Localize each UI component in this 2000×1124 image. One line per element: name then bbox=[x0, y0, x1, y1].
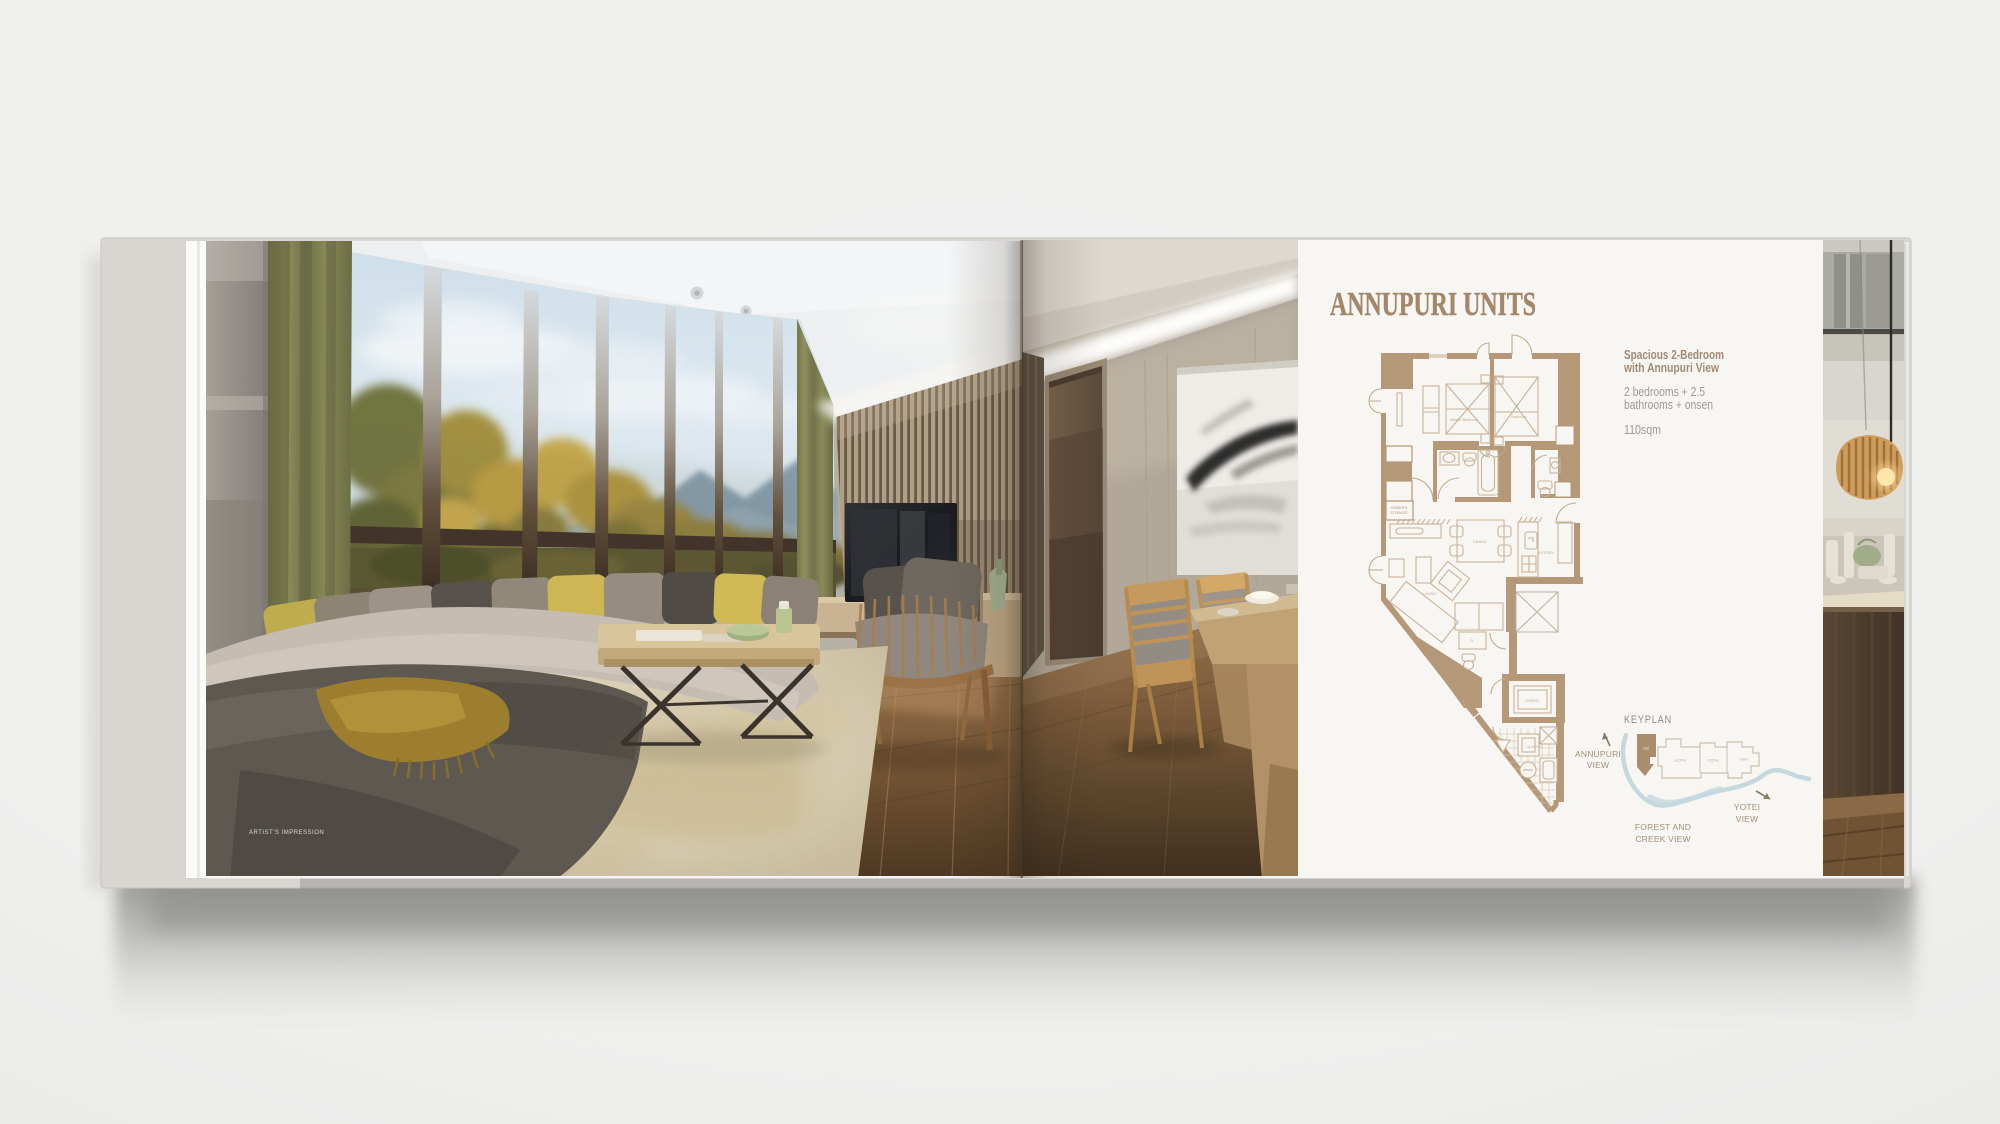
svg-text:YOTEI: YOTEI bbox=[1734, 802, 1761, 812]
svg-text:LIVING: LIVING bbox=[1423, 591, 1436, 596]
svg-text:ONSEN: ONSEN bbox=[1525, 699, 1539, 703]
svg-text:Master Bedroom: Master Bedroom bbox=[1450, 418, 1478, 422]
svg-text:YCPH: YCPH bbox=[1707, 758, 1719, 763]
svg-text:ANNUPURI: ANNUPURI bbox=[1575, 749, 1621, 759]
svg-text:Bedroom: Bedroom bbox=[1511, 415, 1526, 419]
svg-text:LAUNDRY: LAUNDRY bbox=[1526, 745, 1542, 749]
svg-text:KITCHEN: KITCHEN bbox=[1538, 551, 1554, 555]
svg-text:bathrooms + onsen: bathrooms + onsen bbox=[1624, 398, 1713, 412]
svg-text:ANNUPURI UNITS: ANNUPURI UNITS bbox=[1330, 286, 1536, 323]
svg-text:ARTIST'S IMPRESSION: ARTIST'S IMPRESSION bbox=[249, 830, 324, 836]
svg-text:VIEW: VIEW bbox=[1587, 760, 1610, 770]
svg-text:110sqm: 110sqm bbox=[1624, 423, 1661, 437]
svg-text:CL: CL bbox=[1470, 639, 1474, 643]
svg-text:VIEW: VIEW bbox=[1736, 814, 1759, 824]
svg-text:KEYPLAN: KEYPLAN bbox=[1624, 714, 1672, 726]
svg-text:FOREST AND: FOREST AND bbox=[1635, 822, 1691, 832]
svg-text:ACPH: ACPH bbox=[1674, 758, 1686, 763]
svg-text:DINING: DINING bbox=[1473, 539, 1487, 544]
svg-text:with Annupuri View: with Annupuri View bbox=[1623, 361, 1719, 375]
svg-text:A3: A3 bbox=[1643, 746, 1649, 751]
svg-text:2 bedrooms + 2.5: 2 bedrooms + 2.5 bbox=[1624, 385, 1705, 399]
svg-text:YPH: YPH bbox=[1740, 757, 1749, 762]
svg-text:OWNER'S: OWNER'S bbox=[1391, 506, 1408, 510]
svg-text:CREEK VIEW: CREEK VIEW bbox=[1635, 834, 1690, 844]
svg-text:STORAGE: STORAGE bbox=[1390, 511, 1408, 515]
svg-text:Spacious 2-Bedroom: Spacious 2-Bedroom bbox=[1624, 348, 1724, 362]
